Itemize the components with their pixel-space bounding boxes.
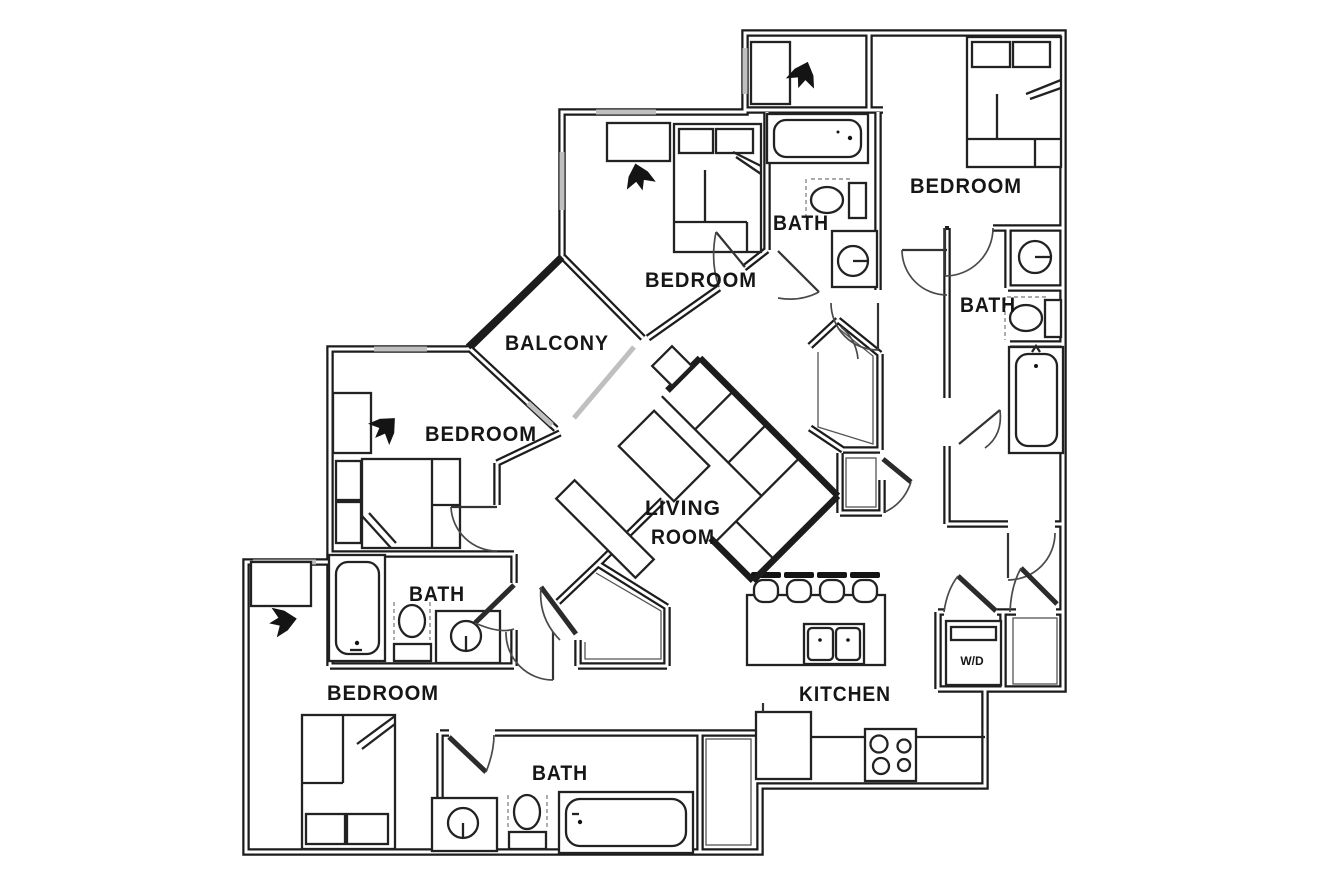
sink-bottom — [432, 798, 497, 851]
door-hall-right-unit — [902, 250, 947, 295]
balcony-side-slider — [528, 403, 552, 425]
sink-top-middle — [832, 231, 877, 287]
desk-bottom-left — [251, 562, 311, 606]
closet-bottom-inner — [706, 739, 751, 845]
coffee-table — [619, 411, 710, 502]
door-bath-bottom — [449, 735, 494, 772]
door-bath-right-lower — [959, 410, 1000, 448]
toilet-bottom — [508, 795, 547, 849]
label-bath-right: BATH — [960, 294, 1016, 317]
label-living-room-line1: LIVING — [645, 497, 721, 520]
door-bath-top-middle — [778, 251, 819, 299]
label-balcony: BALCONY — [505, 332, 609, 355]
washer-dryer-unit — [946, 621, 1001, 685]
door-bath-right-from-bedroom — [945, 228, 993, 276]
toilet-middle-left — [394, 602, 431, 661]
label-kitchen: KITCHEN — [799, 683, 891, 706]
label-bath-top-middle: BATH — [773, 212, 829, 235]
tv-stand — [556, 480, 654, 578]
label-bath-bottom: BATH — [532, 762, 588, 785]
label-bedroom-top-right: BEDROOM — [910, 175, 1022, 198]
chair-top-middle — [621, 160, 657, 195]
side-table — [652, 346, 692, 386]
bathtub-bottom — [559, 792, 693, 853]
label-bedroom-bottom-left: BEDROOM — [327, 682, 439, 705]
door-closet-right — [1010, 568, 1057, 612]
refrigerator — [756, 703, 811, 779]
door-entry — [1008, 533, 1055, 580]
label-bedroom-top-middle: BEDROOM — [645, 269, 757, 292]
sink-right — [1019, 241, 1051, 273]
desk-top-right — [751, 42, 790, 104]
bed-top-right — [967, 37, 1061, 167]
bathtub-top-middle — [767, 114, 868, 163]
door-wd-closet — [944, 576, 996, 612]
floor-plan-drawing: BEDROOM BATH BEDROOM BATH BALCONY BEDROO… — [0, 0, 1320, 890]
label-living-room-line2: ROOM — [651, 526, 715, 549]
chair-bottom-left — [267, 604, 300, 638]
floor-plan: BEDROOM BATH BEDROOM BATH BALCONY BEDROO… — [0, 0, 1320, 890]
desk-top-middle — [607, 123, 670, 161]
closet-hall-inner — [585, 573, 661, 659]
label-bedroom-left: BEDROOM — [425, 423, 537, 446]
bed-left — [336, 459, 460, 548]
label-bath-middle-left: BATH — [409, 583, 465, 606]
desk-left — [333, 393, 371, 453]
closet-right-inner — [1013, 618, 1057, 684]
label-washer-dryer: W/D — [960, 654, 984, 668]
bathtub-middle-left — [329, 555, 385, 661]
door-pantry — [883, 459, 911, 512]
bed-bottom-left — [302, 715, 395, 849]
kitchen-island — [747, 595, 885, 665]
balcony-sliding-door — [574, 347, 634, 418]
bathtub-right — [1009, 346, 1063, 453]
sink-middle-left — [436, 611, 500, 663]
pantry-inner — [846, 458, 876, 507]
stove — [865, 729, 916, 781]
